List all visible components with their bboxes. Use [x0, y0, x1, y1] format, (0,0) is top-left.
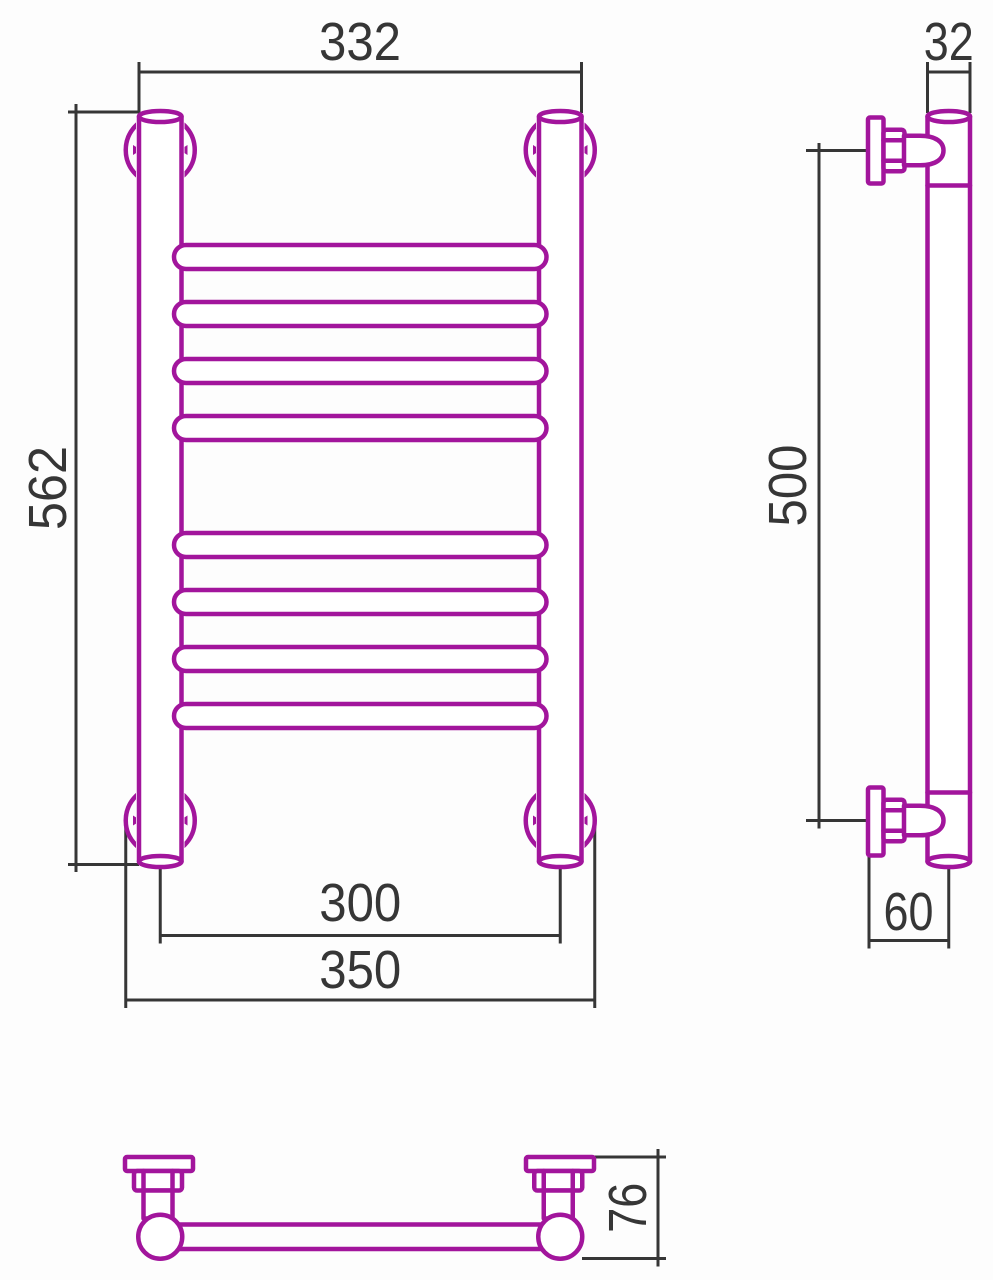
hex-nut	[884, 130, 905, 172]
rung	[174, 359, 547, 383]
rail-right	[536, 111, 585, 867]
wall-plate	[868, 788, 884, 856]
rail-left	[136, 111, 185, 867]
rung	[174, 302, 547, 326]
rail-end-cap	[139, 856, 182, 867]
tube-end-cap	[928, 111, 971, 122]
dim-label-overall-width: 332	[319, 12, 401, 72]
bracket-arm	[904, 136, 944, 166]
technical-drawing-canvas: 332 562 300 350 32	[0, 0, 993, 1280]
tube-body	[925, 117, 972, 862]
rail-end-circle	[538, 1215, 582, 1259]
dim-label-bracket-width: 350	[319, 940, 401, 1000]
rung	[174, 704, 547, 728]
rung	[174, 245, 547, 269]
hex-nut	[534, 1171, 582, 1191]
hex-nut	[884, 800, 905, 842]
dim-label-wall-offset: 60	[884, 882, 934, 942]
rail-end-cap	[539, 856, 582, 867]
rung	[174, 590, 547, 614]
dim-label-overall-height: 562	[18, 446, 78, 530]
rail-body	[136, 117, 185, 862]
rung	[174, 533, 547, 557]
side-tube	[925, 111, 972, 867]
rung	[174, 647, 547, 671]
rail-body	[536, 117, 585, 862]
bracket-arm	[904, 806, 944, 836]
towel-rail-dimensional-drawing: 332 562 300 350 32	[0, 0, 993, 1280]
rail-end-cap	[539, 111, 582, 122]
rung	[174, 416, 547, 440]
wall-plate	[868, 118, 884, 184]
dim-label-depth: 76	[598, 1183, 658, 1233]
dim-label-tube-diameter: 32	[924, 12, 974, 72]
dim-label-bracket-spacing: 500	[758, 445, 818, 527]
tube-end-cap	[928, 856, 971, 867]
hex-nut	[134, 1171, 182, 1191]
rail-end-circle	[138, 1215, 182, 1259]
rail-end-cap	[139, 111, 182, 122]
dim-label-rail-spacing: 300	[319, 873, 401, 933]
